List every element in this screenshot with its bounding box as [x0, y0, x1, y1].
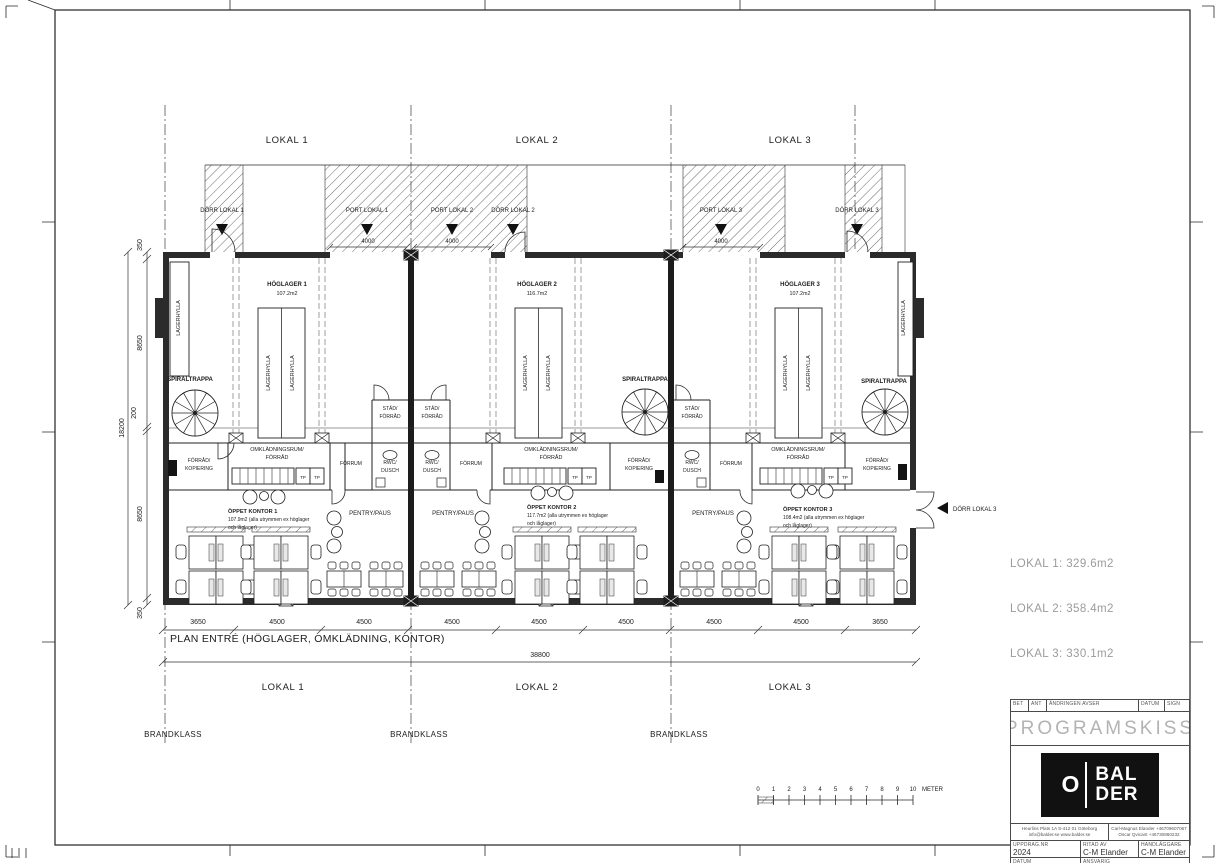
contact-line-2: Oscar Qvicant +46730860232 [1111, 832, 1187, 838]
kontor-3-name: ÖPPET KONTOR 3 [783, 506, 832, 513]
storage-racks: LAGERHYLLA LAGERHYLLA LAGERHYLLA LAGERHY… [170, 262, 913, 438]
spiral-stair-3 [862, 389, 908, 435]
lagerhylla-label: LAGERHYLLA [523, 355, 529, 391]
ansvarig-field: ANSVARIG Carl-Magnus Elander [1081, 858, 1189, 863]
forrad-kopiering-3-label2: KOPIERING [863, 466, 891, 472]
port-2-width: 4000 [445, 239, 459, 245]
scale-tick-8: 8 [880, 787, 884, 793]
logo-row: O BAL DER [1011, 746, 1189, 824]
stad-2-label2: FÖRRÅD [421, 413, 443, 420]
address-line-2: info@balder.se www.balder.se [1013, 832, 1106, 838]
table-cluster [680, 562, 714, 596]
table-cluster [462, 562, 496, 596]
bottom-dimensions: 3650 4500 4500 4500 4500 4500 4500 4500 … [159, 619, 920, 666]
spiral-stair-2 [622, 389, 668, 435]
copier-2 [655, 470, 664, 483]
stad-1-label2: FÖRRÅD [379, 413, 401, 420]
omkladningsrum-2-label: OMKLÄDNINGSRUM/ [524, 446, 578, 453]
balder-logo-line2: DER [1095, 785, 1138, 805]
scale-tick-3: 3 [803, 787, 807, 793]
address-row: Heurlins Plats 1A S-412 01 Göteborg info… [1011, 824, 1189, 841]
kontor-2-area2: och låglager) [527, 520, 556, 527]
dim-3650: 3650 [872, 619, 888, 626]
handlaggare-value: C-M Elander [1141, 848, 1187, 857]
dorr-lokal-3-side-label: DÖRR LOKAL 3 [953, 506, 997, 513]
balder-logo-line1: BAL [1095, 765, 1138, 785]
area-lokal-3: LOKAL 3: 330.1m2 [1010, 647, 1190, 662]
lokal-1-label-bottom: LOKAL 1 [262, 682, 304, 693]
kontor-1-area1: 107.9m2 (alla utrymmen ex höglager [228, 517, 310, 523]
hoglager-3-name: HÖGLAGER 3 [780, 281, 820, 288]
copier-3 [898, 464, 907, 480]
tp-label: TP [314, 475, 320, 480]
title-block-table: BET ANT ÄNDRINGEN AVSER DATUM SIGN PROGR… [1010, 699, 1190, 863]
pentry-3-label: PENTRY/PAUS [692, 511, 734, 517]
spiraltrappa-label-1: SPIRALTRAPPA [167, 377, 213, 383]
lagerhylla-label: LAGERHYLLA [806, 355, 812, 391]
dim-total-height: 18200 [119, 418, 126, 438]
brandklass-label-3: BRANDKLASS [650, 730, 708, 739]
plan-title: PLAN ENTRÉ (HÖGLAGER, OMKLÄDNING, KONTOR… [170, 632, 445, 645]
rwc-2-label2: DUSCH [423, 468, 441, 474]
dim-8650-bottom: 8650 [137, 506, 144, 522]
hoglager-2-name: HÖGLAGER 2 [517, 281, 557, 288]
omkladningsrum-3-label2: FÖRRÅD [787, 454, 810, 461]
lagerhylla-label: LAGERHYLLA [176, 300, 182, 336]
company-address: Heurlins Plats 1A S-412 01 Göteborg info… [1011, 824, 1109, 840]
ritad-av-value: C-M Elander [1083, 848, 1136, 857]
fields-row-2: DATUM 2024-12-18 ANSVARIG Carl-Magnus El… [1011, 858, 1189, 863]
port-1-width: 4000 [361, 239, 375, 245]
dim-200: 200 [131, 407, 138, 419]
brandklass-label-2: BRANDKLASS [390, 730, 448, 739]
forrad-kopiering-1-label: FÖRRÅD/ [188, 457, 211, 464]
spiral-stair-1 [172, 390, 218, 436]
pouf-group [737, 511, 753, 553]
stad-3-label2: FÖRRÅD [681, 413, 703, 420]
furniture [176, 484, 907, 604]
pentry-2-label: PENTRY/PAUS [432, 511, 474, 517]
fields-row-1: UPPDRAG.NR 2024 RITAD AV C-M Elander HAN… [1011, 841, 1189, 858]
drawing-sheet: LOKAL 1 LOKAL 2 LOKAL 3 LOKAL 1 LOKAL 2 … [0, 0, 1220, 863]
wall-niche-left [155, 298, 163, 338]
forrum-1-label: FÖRRUM [340, 460, 362, 467]
tp-label: TP [828, 475, 834, 480]
pouf-group [475, 511, 491, 553]
ansvarig-label: ANSVARIG [1083, 859, 1187, 863]
stad-1-label: STÄD/ [383, 405, 398, 412]
contact-info: Carl-Magnus Elander +46709607067 Oscar Q… [1109, 824, 1189, 840]
stad-3-label: STÄD/ [685, 405, 700, 412]
hoglager-1-area: 107.2m2 [277, 291, 298, 297]
scale-tick-2: 2 [787, 787, 791, 793]
table-cluster [369, 562, 403, 596]
rev-datum-header: DATUM [1139, 700, 1165, 711]
dim-total-width: 38800 [530, 652, 550, 659]
loading-dock-band [205, 165, 905, 252]
scale-tick-0: 0 [756, 787, 760, 793]
port-lokal-1-label: PORT LOKAL 1 [346, 208, 389, 214]
forrum-3-label: FÖRRUM [720, 460, 742, 467]
scale-tick-7: 7 [865, 787, 869, 793]
wall-niche-right [916, 298, 924, 338]
table-cluster [420, 562, 454, 596]
port-lokal-2-label: PORT LOKAL 2 [431, 208, 474, 214]
table-cluster [327, 562, 361, 596]
spiraltrappa-label-3: SPIRALTRAPPA [861, 379, 907, 385]
rwc-2-label: RWC/ [425, 460, 439, 466]
balder-logo: O BAL DER [1041, 753, 1159, 817]
dim-3650: 3650 [190, 619, 206, 626]
rev-bet-header: BET [1011, 700, 1029, 711]
pouf-group [791, 484, 833, 498]
dorr-lokal-3-top-label: DÖRR LOKAL 3 [835, 207, 879, 214]
rev-ant-header: ANT [1029, 700, 1047, 711]
dorr-lokal-2-label: DÖRR LOKAL 2 [491, 207, 535, 214]
left-dimensions: 350 8650 200 8650 350 18200 [119, 239, 151, 619]
revision-header-row: BET ANT ÄNDRINGEN AVSER DATUM SIGN [1011, 700, 1189, 712]
kontor-2-name: ÖPPET KONTOR 2 [527, 504, 576, 511]
kontor-2-area1: 117.7m2 (alla utrymmen ex höglager [527, 513, 608, 519]
frame-fold-marks [12, 848, 26, 858]
omkladningsrum-2-label2: FÖRRÅD [540, 454, 563, 461]
area-lokal-1: LOKAL 1: 329.6m2 [1010, 557, 1190, 572]
uppdrag-value: 2024 [1013, 848, 1078, 857]
dim-4500: 4500 [706, 619, 722, 626]
dim-350-top: 350 [137, 239, 144, 251]
lockers: TP TP TP TP TP TP [232, 468, 852, 484]
title-block: LOKAL 1: 329.6m2 LOKAL 2: 358.4m2 LOKAL … [1010, 527, 1190, 863]
rwc-1-label: RWC/ [383, 460, 397, 466]
pouf-group [531, 486, 573, 500]
forrad-kopiering-3-label: FÖRRÅD/ [866, 457, 889, 464]
scale-tick-4: 4 [818, 787, 822, 793]
scale-unit-label: METER [922, 787, 944, 793]
scale-bar: 0 1 2 3 4 5 6 7 8 9 10 METER [756, 787, 943, 805]
lokal-3-label-top: LOKAL 3 [769, 135, 811, 146]
hoglager-2-area: 116.7m2 [527, 291, 548, 297]
pentry-1-label: PENTRY/PAUS [349, 511, 391, 517]
lagerhylla-label: LAGERHYLLA [783, 355, 789, 391]
scale-tick-5: 5 [834, 787, 838, 793]
dorr-lokal-1-label: DÖRR LOKAL 1 [200, 207, 244, 214]
lokal-2-label-top: LOKAL 2 [516, 135, 558, 146]
dim-4500: 4500 [618, 619, 634, 626]
hoglager-3-area: 107.2m2 [790, 291, 811, 297]
dim-4500: 4500 [269, 619, 285, 626]
pouf-group [327, 511, 343, 553]
hoglager-labels: HÖGLAGER 1 107.2m2 HÖGLAGER 2 116.7m2 HÖ… [267, 281, 820, 297]
uppdrag-field: UPPDRAG.NR 2024 [1011, 841, 1081, 857]
lokal-1-label-top: LOKAL 1 [266, 135, 308, 146]
hoglager-1-name: HÖGLAGER 1 [267, 281, 307, 288]
ritad-av-field: RITAD AV C-M Elander [1081, 841, 1139, 857]
lagerhylla-label: LAGERHYLLA [266, 355, 272, 391]
scale-tick-6: 6 [849, 787, 853, 793]
copier-1 [168, 460, 177, 476]
forrad-kopiering-2-label2: KOPIERING [625, 466, 653, 472]
datum-label: DATUM [1013, 859, 1078, 863]
rwc-3-label2: DUSCH [683, 468, 701, 474]
forrad-kopiering-2-label: FÖRRÅD/ [628, 457, 651, 464]
handlaggare-field: HANDLÄGGARE C-M Elander [1139, 841, 1189, 857]
dim-4500: 4500 [356, 619, 372, 626]
port-lokal-3-label: PORT LOKAL 3 [700, 208, 743, 214]
omkladningsrum-1-label: OMKLÄDNINGSRUM/ [250, 446, 304, 453]
tp-label: TP [572, 475, 578, 480]
lagerhylla-label: LAGERHYLLA [901, 300, 907, 336]
balder-logo-word: BAL DER [1095, 765, 1138, 805]
dim-4500: 4500 [531, 619, 547, 626]
lokal-2-label-bottom: LOKAL 2 [516, 682, 558, 693]
side-door-lokal-3: DÖRR LOKAL 3 [916, 492, 997, 528]
kontor-3-area1: 108.4m2 (alla utrymmen ex höglager [783, 515, 865, 521]
rev-andringen-header: ÄNDRINGEN AVSER [1047, 700, 1139, 711]
spiraltrappa-label-2: SPIRALTRAPPA [622, 377, 668, 383]
rwc-3-label: RWC/ [685, 460, 699, 466]
dim-4500: 4500 [444, 619, 460, 626]
rwc-1-label2: DUSCH [381, 468, 399, 474]
scale-tick-10: 10 [910, 787, 917, 793]
forrum-2-label: FÖRRUM [460, 460, 482, 467]
port-3-width: 4000 [714, 239, 728, 245]
scale-tick-9: 9 [896, 787, 900, 793]
lokal-3-label-bottom: LOKAL 3 [769, 682, 811, 693]
kontor-1-name: ÖPPET KONTOR 1 [228, 508, 277, 515]
stad-2-label: STÄD/ [425, 405, 440, 412]
lagerhylla-label: LAGERHYLLA [546, 355, 552, 391]
area-summary: LOKAL 1: 329.6m2 LOKAL 2: 358.4m2 LOKAL … [1010, 527, 1190, 692]
dim-350-bottom: 350 [137, 607, 144, 619]
area-lokal-2: LOKAL 2: 358.4m2 [1010, 602, 1190, 617]
rev-sign-header: SIGN [1165, 700, 1189, 711]
lagerhylla-label: LAGERHYLLA [290, 355, 296, 391]
table-cluster [722, 562, 756, 596]
pouf-group [243, 490, 285, 504]
dim-8650-top: 8650 [137, 335, 144, 351]
balder-logo-o: O [1061, 773, 1079, 796]
side-door-arrow-icon [937, 502, 948, 514]
tp-label: TP [300, 475, 306, 480]
dim-4500: 4500 [793, 619, 809, 626]
brandklass-label-1: BRANDKLASS [144, 730, 202, 739]
forrad-kopiering-1-label2: KOPIERING [185, 466, 213, 472]
datum-field: DATUM 2024-12-18 [1011, 858, 1081, 863]
omkladningsrum-3-label: OMKLÄDNINGSRUM/ [771, 446, 825, 453]
omkladningsrum-1-label2: FÖRRÅD [266, 454, 289, 461]
document-type: PROGRAMSKISS [1011, 712, 1189, 745]
scale-tick-1: 1 [772, 787, 776, 793]
tp-label: TP [586, 475, 592, 480]
balder-logo-bar [1085, 762, 1087, 808]
tp-label: TP [842, 475, 848, 480]
